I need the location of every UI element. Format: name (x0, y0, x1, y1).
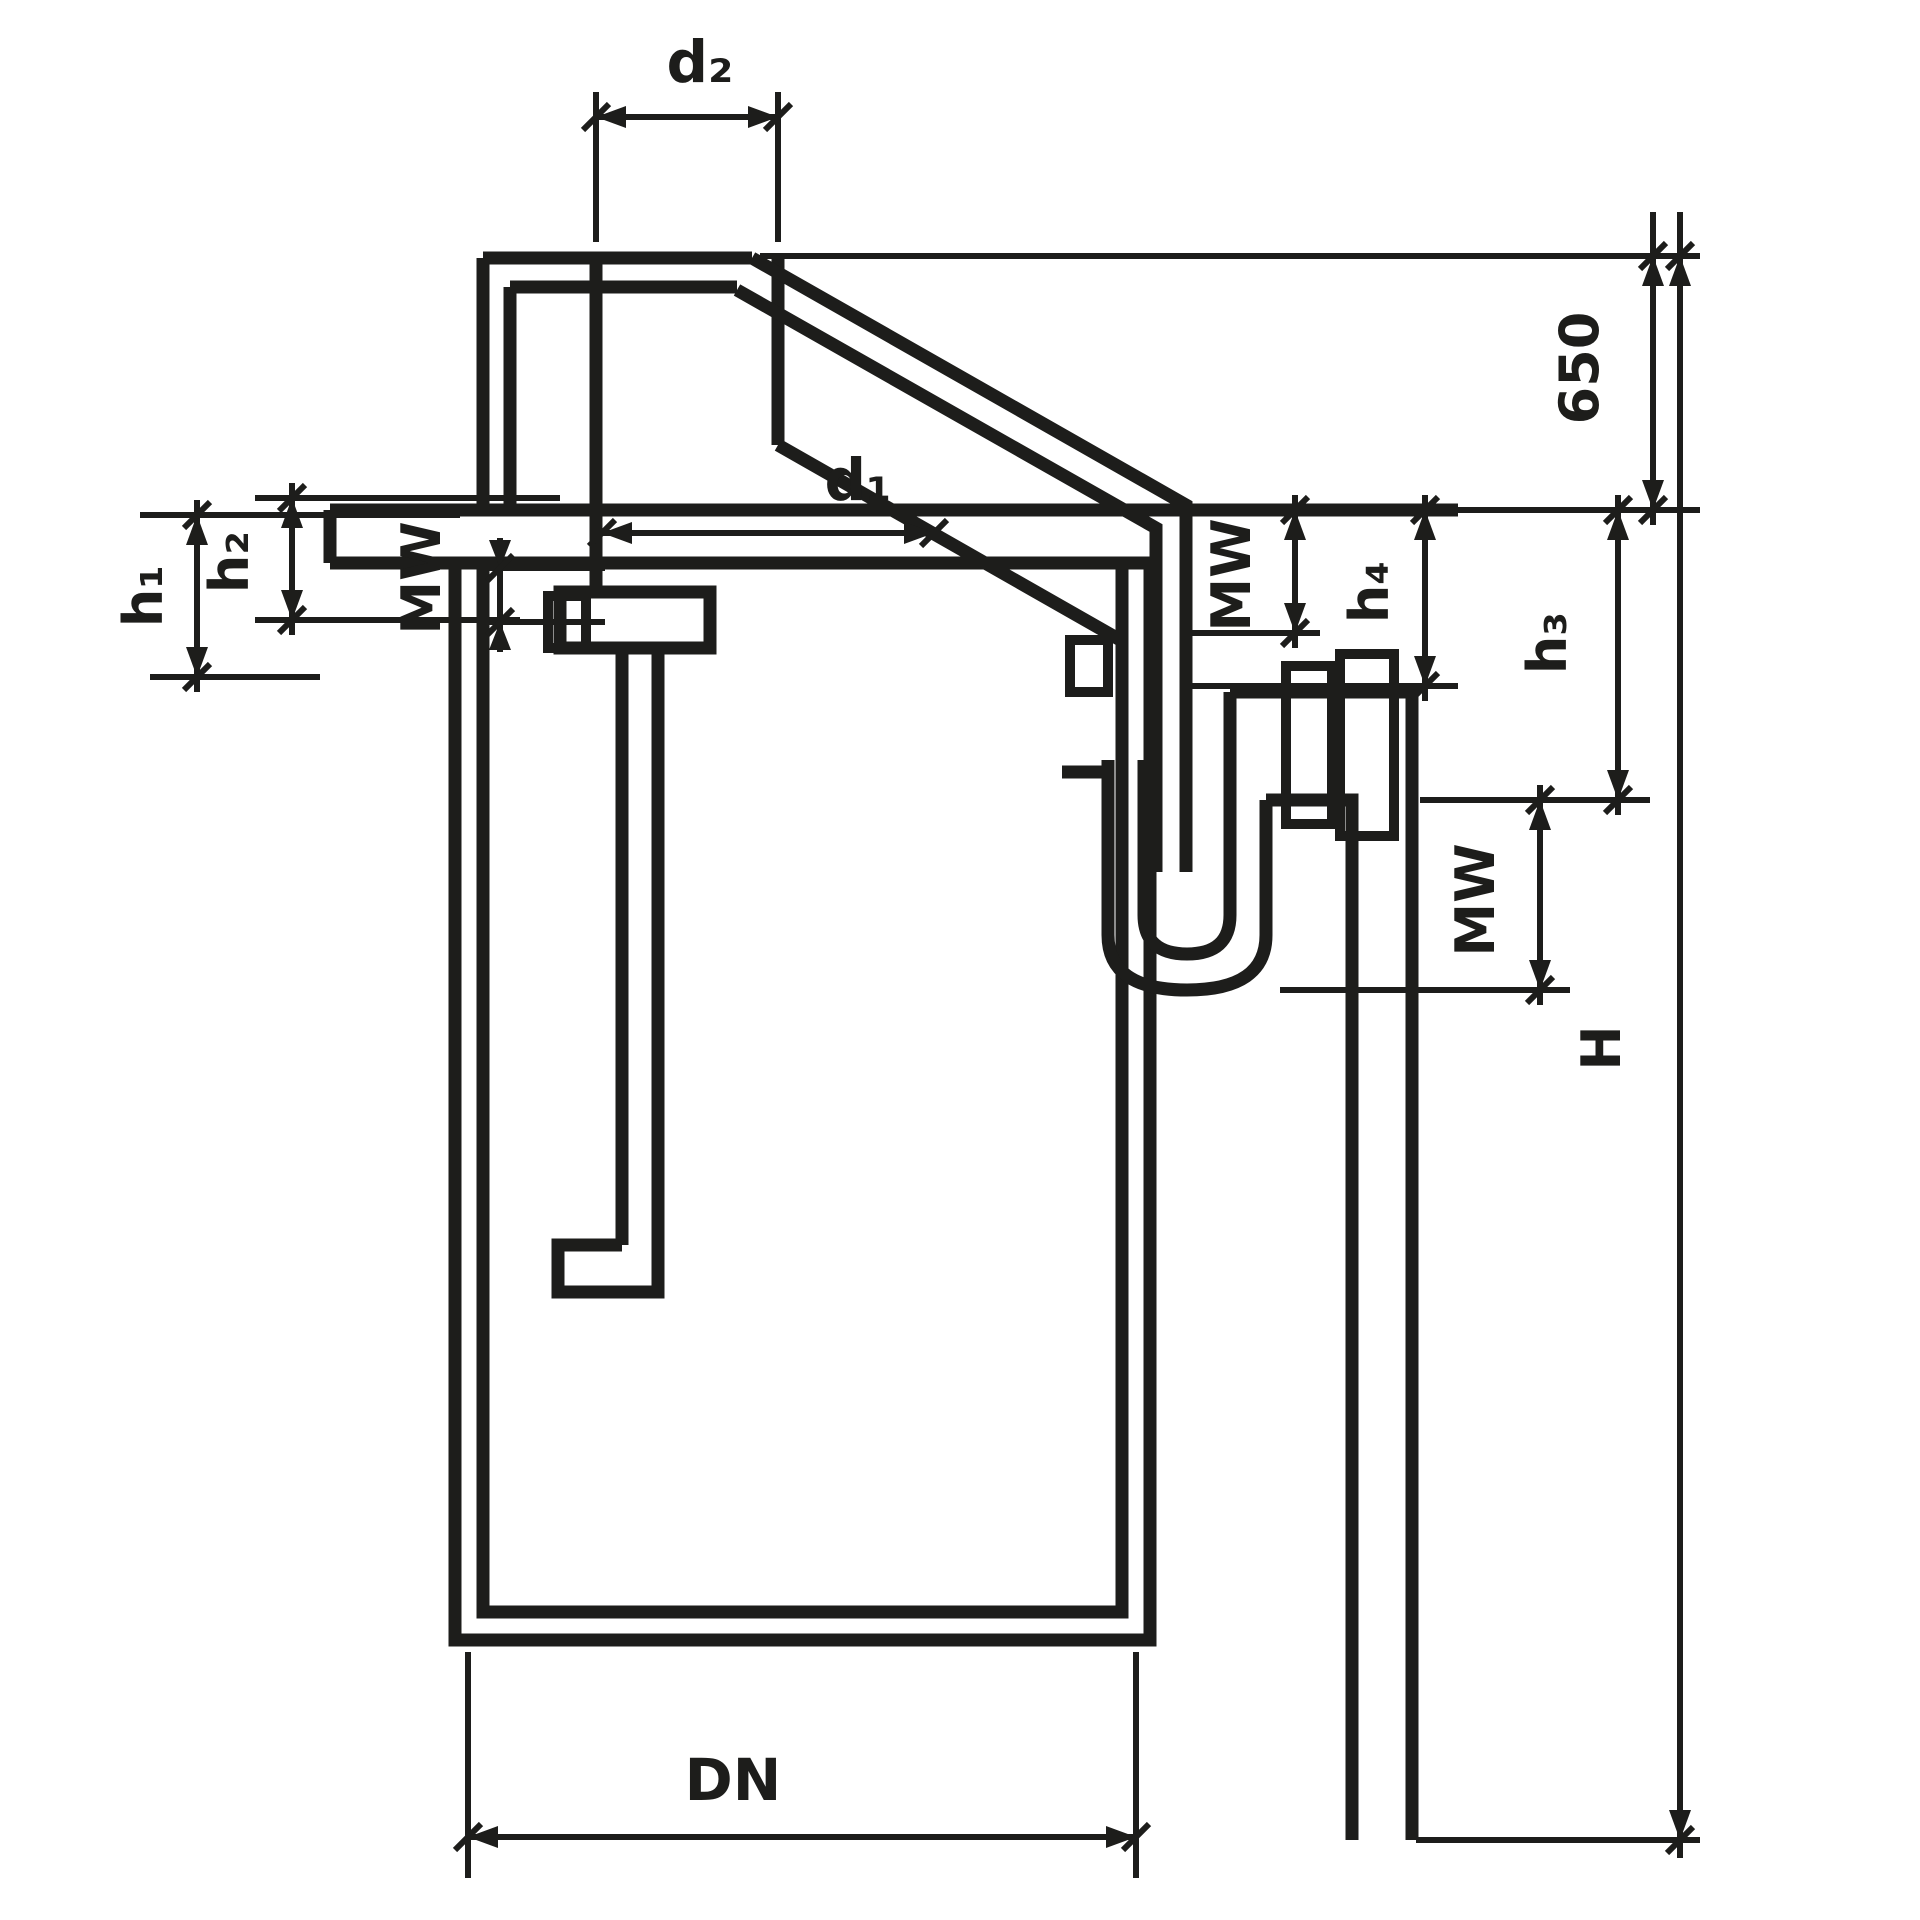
dim-label-h4: h₄ (1338, 561, 1401, 623)
gully-section-drawing: d₂ d₁ DN h₁ h₂ MW MW h₄ h₃ 650 MW H (0, 0, 1920, 1920)
outlet-pipe-top-wall (1230, 692, 1412, 1840)
dim-label-mw-left: MW (390, 521, 453, 634)
dim-label-mw-middle: MW (1200, 518, 1263, 631)
dim-label-h1: h₁ (112, 565, 175, 627)
dim-label-d1: d₁ (825, 446, 892, 514)
dim-label-650: 650 (1548, 312, 1611, 425)
dimension-labels: d₂ d₁ DN h₁ h₂ MW MW h₄ h₃ 650 MW H (112, 28, 1633, 1814)
rim-bolt-right (1070, 640, 1108, 692)
dim-label-h2: h₂ (198, 531, 261, 593)
dim-label-dn: DN (685, 1746, 782, 1814)
outlet-pipe-bottom-wall (1266, 800, 1352, 1840)
tank-outer-wall (455, 563, 1150, 1640)
dim-label-h-total: H (1570, 1025, 1633, 1070)
dim-label-d2: d₂ (667, 28, 734, 96)
dim-label-mw-right: MW (1444, 843, 1507, 956)
dim-label-h3: h₃ (1516, 612, 1579, 674)
technical-drawing-canvas: d₂ d₁ DN h₁ h₂ MW MW h₄ h₃ 650 MW H (0, 0, 1920, 1920)
tank-inner-wall (483, 563, 1122, 1612)
dip-tube-foot (558, 1245, 658, 1292)
inlet-pipe-inner-top (737, 290, 1156, 872)
